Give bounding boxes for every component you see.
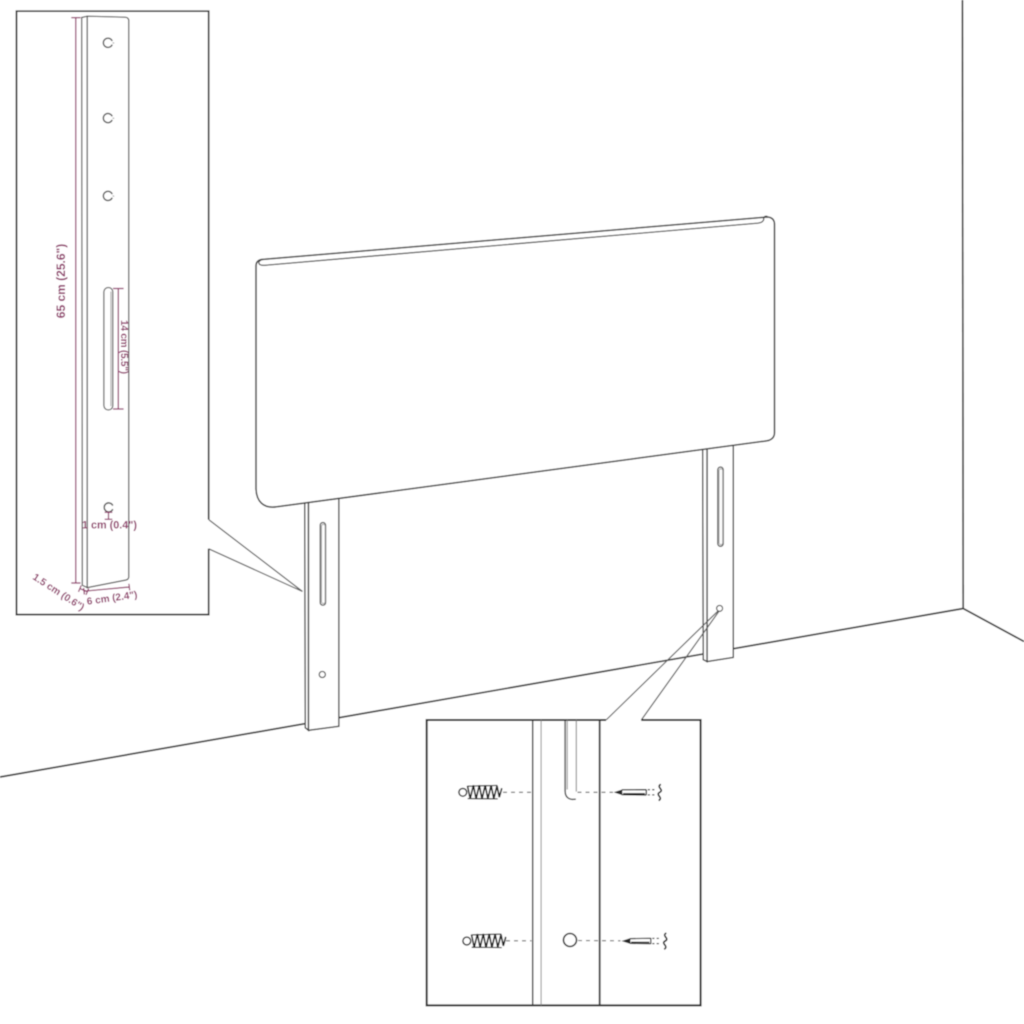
- svg-text:65 cm (25.6"): 65 cm (25.6"): [54, 244, 68, 318]
- svg-text:1 cm (0.4"): 1 cm (0.4"): [82, 520, 137, 532]
- svg-text:14 cm (5.5"): 14 cm (5.5"): [118, 320, 129, 374]
